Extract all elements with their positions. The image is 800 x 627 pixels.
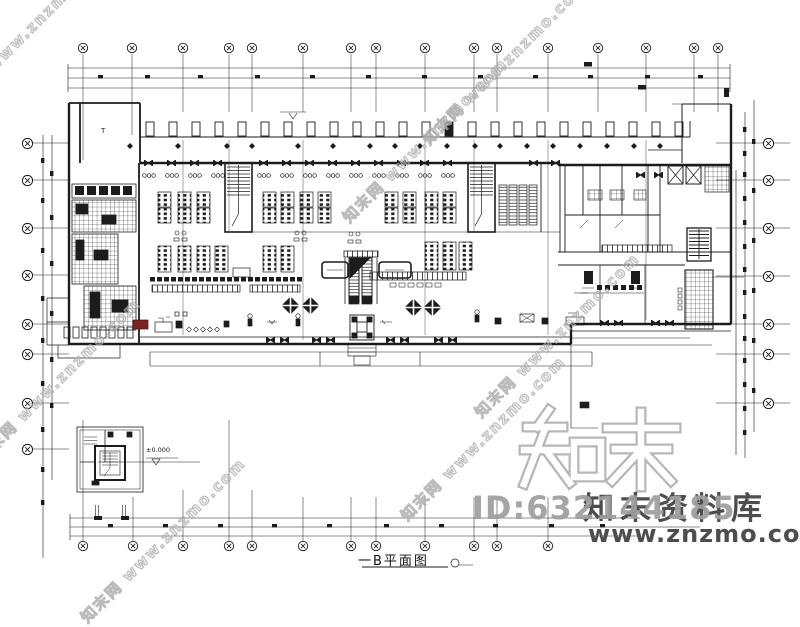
watermark-brand-glyphs bbox=[524, 410, 676, 487]
red-counter bbox=[133, 320, 148, 329]
bottom-left-fixtures bbox=[133, 312, 548, 332]
shelf-row-upper bbox=[158, 192, 456, 223]
detail-plan bbox=[77, 427, 200, 492]
lamp-figures bbox=[248, 310, 479, 326]
detail-stair bbox=[95, 446, 125, 480]
grid-bubbles-top bbox=[78, 43, 722, 52]
entrance-steps bbox=[348, 344, 376, 365]
building-shell bbox=[69, 103, 731, 345]
drawing-caption: 一B平面图 bbox=[358, 550, 429, 569]
grid-bubbles-right bbox=[763, 138, 773, 408]
stair-office bbox=[687, 228, 711, 261]
cad-floor-plan-sheet: 知末网 www.znzmo.com 知末网 www.znzmo.com 知末网 … bbox=[0, 0, 800, 600]
shelf-room-right bbox=[499, 185, 537, 225]
elevator-icons bbox=[668, 166, 729, 192]
service-marks bbox=[174, 231, 361, 243]
parapet-elevation-mark bbox=[280, 112, 306, 119]
room-label: T bbox=[101, 127, 105, 135]
watermark-id-label: ID:632144185 bbox=[472, 489, 736, 527]
hatched-shaft bbox=[685, 270, 713, 329]
stair-center bbox=[468, 163, 495, 232]
checkout-counters bbox=[150, 272, 644, 293]
entrance-vestibule bbox=[350, 315, 374, 340]
elevation-label: ±0.000 bbox=[146, 446, 170, 454]
column-triplets bbox=[143, 174, 455, 178]
parapet-diamonds bbox=[127, 143, 663, 149]
outer-walls bbox=[69, 103, 731, 345]
